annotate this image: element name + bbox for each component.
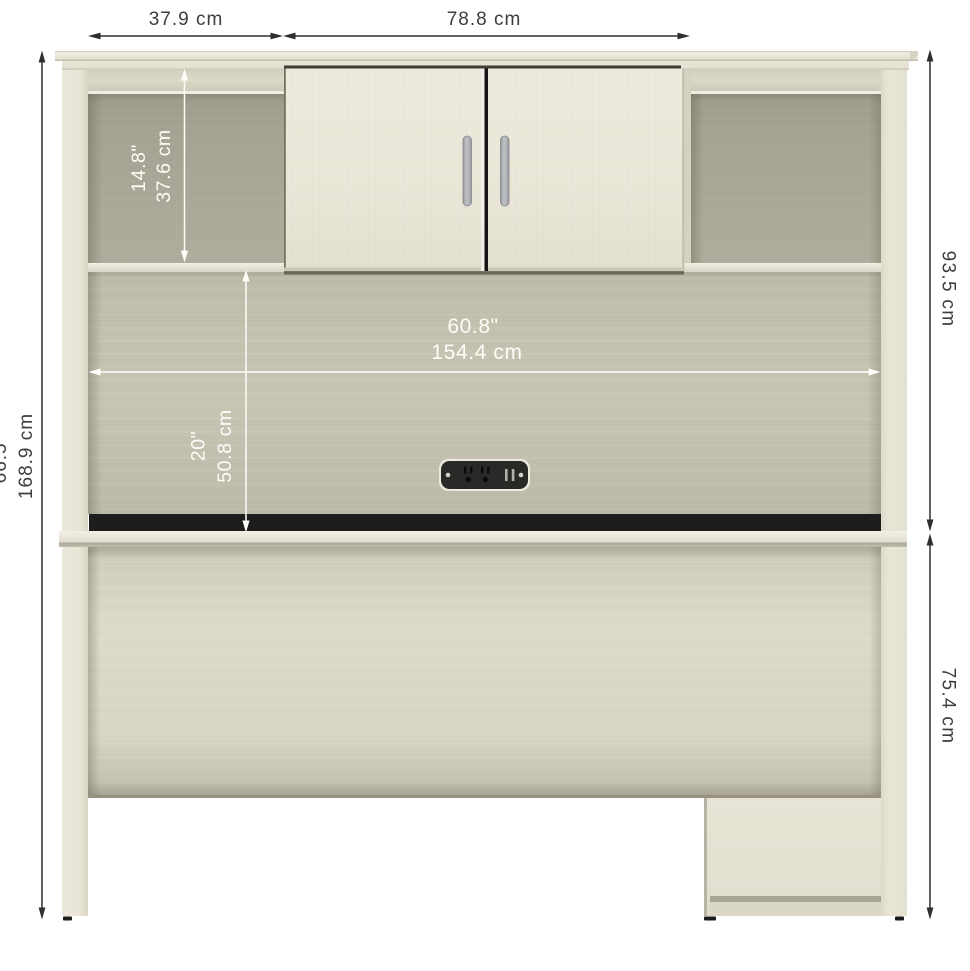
svg-text:37.9 cm: 37.9 cm bbox=[149, 9, 224, 30]
svg-text:50.8 cm: 50.8 cm bbox=[214, 409, 236, 483]
svg-text:93.5 cm: 93.5 cm bbox=[938, 251, 959, 328]
svg-text:75.4 cm: 75.4 cm bbox=[938, 668, 959, 745]
svg-text:66.5": 66.5" bbox=[0, 435, 11, 484]
svg-text:37.6 cm: 37.6 cm bbox=[153, 129, 175, 203]
svg-text:78.8 cm: 78.8 cm bbox=[447, 9, 522, 30]
svg-text:20": 20" bbox=[188, 431, 210, 461]
svg-text:14.8": 14.8" bbox=[128, 144, 150, 192]
svg-text:154.4 cm: 154.4 cm bbox=[431, 341, 522, 364]
svg-text:60.8": 60.8" bbox=[447, 315, 498, 338]
svg-text:168.9 cm: 168.9 cm bbox=[16, 413, 37, 499]
